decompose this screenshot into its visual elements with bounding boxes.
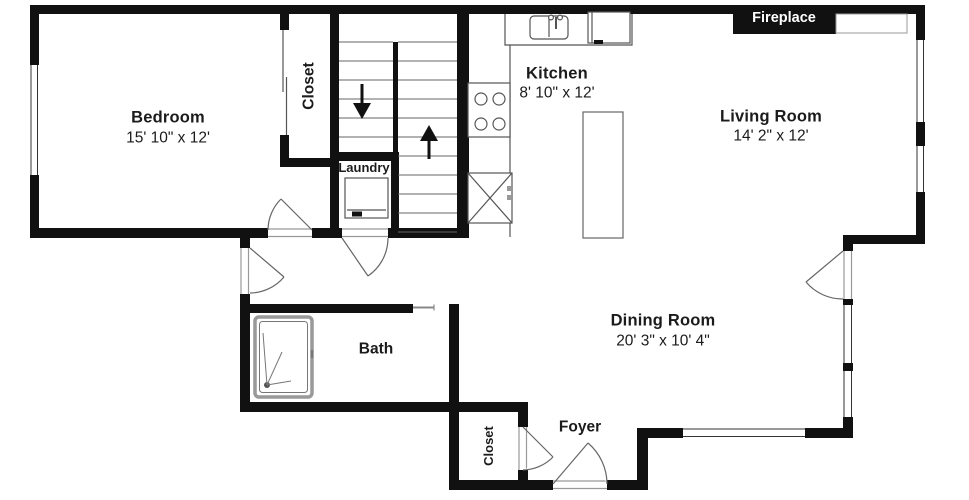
wall-laundry-right [391,161,399,238]
side-entry-door [240,248,284,294]
wall-stairs-bottom [388,228,469,238]
kitchen-fixtures [468,12,632,238]
living-window-2 [916,146,925,192]
room-label-bedroom: Bedroom [131,109,205,128]
stairs-divider [393,42,398,152]
living-window-1 [916,40,925,122]
wall-dining-right-4 [843,417,853,438]
wall-dining-right-1 [843,244,853,251]
sink-icon [530,15,568,39]
bath-fixtures [255,317,312,397]
kitchen-dimensions: 8' 10" x 12' [519,84,594,101]
wall-living-step [843,235,925,244]
bedroom-door [268,199,312,238]
room-label-foyer-closet: Closet [482,426,496,466]
wall-left-upper [30,14,39,65]
room-label-laundry: Laundry [338,161,389,175]
fireplace-label: Fireplace [752,11,816,27]
room-label-bedroom-closet: Closet [300,62,317,109]
living-room-name: Living Room [720,108,822,126]
room-label-foyer: Foyer [559,418,601,435]
bath-door [413,304,449,313]
wall-dining-right-3 [843,363,853,371]
dining-room-name: Dining Room [611,312,716,330]
wall-living-right-2 [916,122,925,146]
wall-foyer-closet-left [449,412,459,490]
wall-hall-left-upper [240,238,250,248]
kitchen-island [583,112,623,238]
room-label-living-room: Living Room [720,108,822,127]
bedroom-name: Bedroom [131,109,205,127]
wall-dining-right-2 [843,299,853,305]
dishwasher-icon [588,12,630,44]
walls [30,5,925,490]
wall-stairs-left [330,14,339,238]
wall-foyer-bottom-left [449,480,553,490]
wall-closet-bottom [280,158,330,167]
laundry-fixtures [345,178,388,218]
room-label-bath: Bath [359,340,393,357]
room-label-kitchen: Kitchen [526,65,588,84]
wall-bedroom-bottom [30,228,268,238]
kitchen-name: Kitchen [526,65,588,83]
wall-kitchen-stairs [457,14,469,238]
wall-living-right-3 [916,192,925,244]
room-label-dining-room: Dining Room [611,312,716,331]
refrigerator-icon [468,173,512,223]
fireplace-hearth [836,14,907,33]
dining-window-2 [843,371,853,417]
foyer-closet-door [518,427,553,470]
dining-window-1 [843,305,853,363]
front-door [553,443,607,490]
up-arrow-icon [420,125,438,159]
dining-room-dimensions: 20' 3" x 10' 4" [616,332,710,349]
wall-bath-bottom [240,402,528,412]
wall-bath-top [250,304,413,313]
wall-foyer-closet-right-lower [518,470,528,480]
wall-dining-bottom-left [637,428,683,438]
down-arrow-icon [353,84,371,119]
living-room-dimensions: 14' 2" x 12' [733,127,808,144]
shower-icon [255,317,312,397]
wall-foyer-bottom-right [607,480,648,490]
bedroom-closet-sliding-door [280,30,289,135]
floor-plan: Bedroom 15' 10" x 12' Closet Laundry Kit… [0,0,969,500]
washer-icon [345,178,388,218]
wall-bath-right [449,304,459,402]
dining-patio-door [806,251,853,299]
stairs-down-treads [339,42,393,137]
wall-closet-divider-top [280,14,289,30]
wall-foyer-closet-right-upper [518,412,528,427]
laundry-door [342,228,388,276]
wall-hall-left-lower [240,294,250,402]
bedroom-window [30,65,39,175]
stove-icon [468,83,510,137]
bedroom-dimensions: 15' 10" x 12' [126,129,210,146]
wall-living-right-1 [916,14,925,40]
dining-bottom-window [683,428,805,438]
